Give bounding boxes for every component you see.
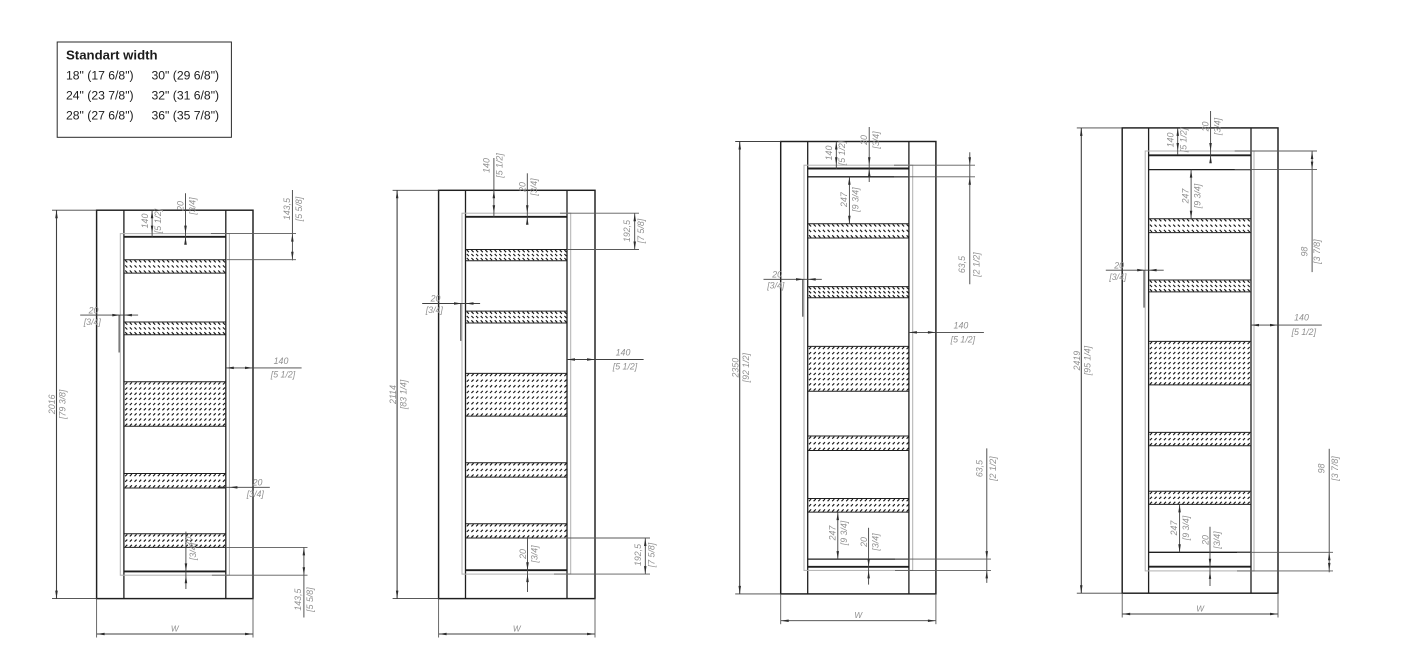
svg-text:143,5: 143,5 (282, 198, 292, 220)
svg-text:[5 5/8]: [5 5/8] (294, 196, 304, 222)
svg-text:[92 1/2]: [92 1/2] (741, 352, 751, 383)
svg-text:[5 1/2]: [5 1/2] (1178, 127, 1188, 153)
svg-text:[7 5/8]: [7 5/8] (646, 542, 656, 568)
svg-text:192,5: 192,5 (633, 544, 643, 566)
svg-text:20: 20 (859, 135, 869, 146)
svg-text:140: 140 (616, 348, 631, 358)
svg-text:20: 20 (430, 294, 441, 304)
svg-text:[5 1/2]: [5 1/2] (612, 361, 638, 371)
svg-text:[9 3/4]: [9 3/4] (851, 187, 861, 213)
svg-text:32" (31 6/8"): 32" (31 6/8") (152, 88, 220, 102)
svg-text:140: 140 (482, 158, 492, 173)
svg-text:20: 20 (175, 201, 185, 212)
svg-text:[5 1/2]: [5 1/2] (950, 334, 976, 344)
svg-text:[79 3/8]: [79 3/8] (58, 389, 68, 420)
svg-text:[3/4]: [3/4] (246, 489, 265, 499)
svg-text:2350: 2350 (730, 358, 740, 379)
svg-text:W: W (513, 624, 522, 633)
svg-text:2016: 2016 (47, 394, 57, 415)
svg-text:[83 1/4]: [83 1/4] (398, 379, 408, 410)
svg-text:[3 7/8]: [3 7/8] (1330, 456, 1340, 482)
svg-text:2419: 2419 (1072, 351, 1082, 372)
svg-text:63,5: 63,5 (957, 256, 967, 273)
svg-text:140: 140 (1165, 133, 1175, 148)
svg-text:24" (23 7/8"): 24" (23 7/8") (66, 88, 134, 102)
svg-text:[9 3/4]: [9 3/4] (839, 520, 849, 546)
svg-text:Standart width: Standart width (66, 48, 158, 63)
svg-text:247: 247 (839, 191, 849, 208)
svg-text:247: 247 (827, 525, 837, 542)
svg-text:20: 20 (859, 537, 869, 548)
svg-text:20: 20 (252, 477, 263, 487)
svg-text:[2 1/2]: [2 1/2] (988, 456, 998, 482)
svg-text:28" (27 6/8"): 28" (27 6/8") (66, 109, 134, 123)
svg-text:[3/4]: [3/4] (188, 542, 198, 561)
svg-text:W: W (1196, 604, 1205, 613)
svg-text:20: 20 (518, 549, 528, 560)
svg-text:20: 20 (1201, 122, 1211, 133)
svg-text:[9 3/4]: [9 3/4] (1181, 515, 1191, 541)
svg-text:98: 98 (1300, 247, 1310, 257)
svg-text:[3/4]: [3/4] (529, 545, 539, 564)
svg-text:140: 140 (140, 214, 150, 229)
svg-text:247: 247 (1169, 520, 1179, 537)
svg-text:W: W (854, 611, 863, 620)
svg-text:[3/4]: [3/4] (529, 178, 539, 197)
svg-text:[5 1/2]: [5 1/2] (1291, 327, 1317, 337)
svg-text:20: 20 (517, 182, 527, 193)
svg-text:140: 140 (824, 146, 834, 161)
svg-text:[3/4]: [3/4] (187, 197, 197, 216)
svg-text:140: 140 (274, 356, 289, 366)
svg-text:98: 98 (1316, 464, 1326, 474)
svg-text:140: 140 (1294, 312, 1309, 322)
svg-text:W: W (171, 624, 180, 633)
svg-text:20: 20 (88, 305, 99, 315)
svg-text:2114: 2114 (388, 385, 398, 405)
svg-text:[95 1/4]: [95 1/4] (1082, 345, 1092, 376)
svg-text:[3/4]: [3/4] (1212, 531, 1222, 550)
svg-text:[3/4]: [3/4] (1108, 272, 1127, 282)
svg-text:[3/4]: [3/4] (870, 533, 880, 552)
svg-text:[3 7/8]: [3 7/8] (1312, 239, 1322, 265)
svg-text:[3/4]: [3/4] (871, 131, 881, 150)
svg-text:[5 1/2]: [5 1/2] (153, 208, 163, 234)
svg-text:[5 5/8]: [5 5/8] (305, 587, 315, 613)
svg-text:143,5: 143,5 (293, 588, 303, 610)
svg-text:30" (29 6/8"): 30" (29 6/8") (152, 69, 220, 83)
svg-text:18" (17 6/8"): 18" (17 6/8") (66, 69, 134, 83)
svg-text:[2 1/2]: [2 1/2] (971, 252, 981, 278)
svg-text:192,5: 192,5 (622, 220, 632, 242)
svg-text:[3/4]: [3/4] (766, 280, 785, 290)
svg-text:20: 20 (1113, 260, 1124, 270)
svg-text:247: 247 (1181, 188, 1191, 205)
svg-text:20: 20 (1200, 535, 1210, 546)
svg-text:36" (35 7/8"): 36" (35 7/8") (152, 109, 220, 123)
svg-text:[9 3/4]: [9 3/4] (1192, 183, 1202, 209)
svg-text:20: 20 (771, 269, 782, 279)
svg-text:[5 1/2]: [5 1/2] (270, 370, 296, 380)
svg-text:[3/4]: [3/4] (425, 305, 444, 315)
svg-text:[3/4]: [3/4] (1212, 117, 1222, 136)
svg-text:140: 140 (954, 320, 969, 330)
svg-text:[7 5/8]: [7 5/8] (636, 218, 646, 244)
svg-text:[5 1/2]: [5 1/2] (837, 140, 847, 166)
svg-text:[5 1/2]: [5 1/2] (495, 153, 505, 179)
svg-text:63,5: 63,5 (974, 460, 984, 477)
svg-text:[3/4]: [3/4] (83, 317, 102, 327)
